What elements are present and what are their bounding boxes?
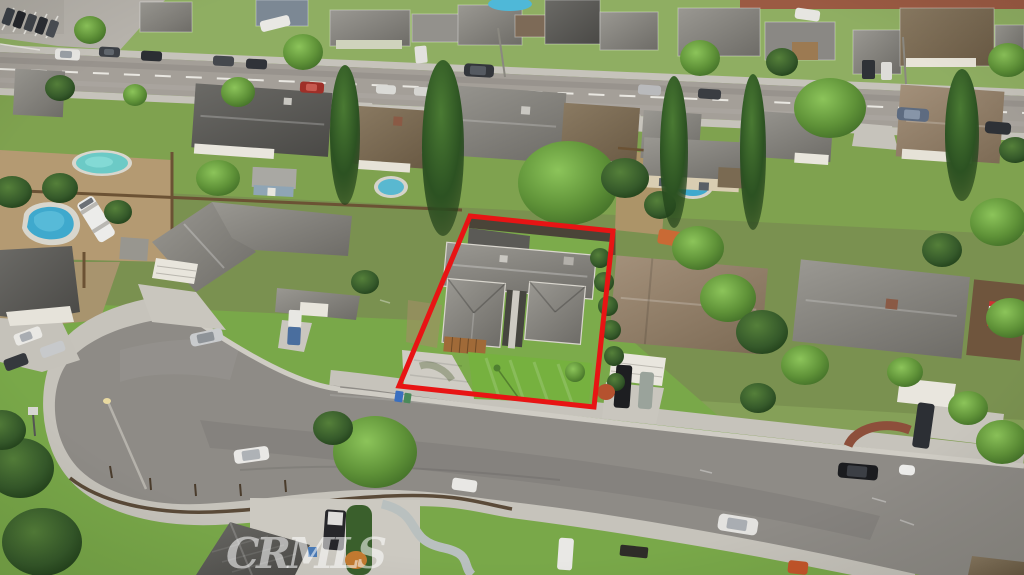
aerial-photo: CRMLS [0, 0, 1024, 575]
vignette [0, 0, 1024, 575]
aerial-scene [0, 0, 1024, 575]
